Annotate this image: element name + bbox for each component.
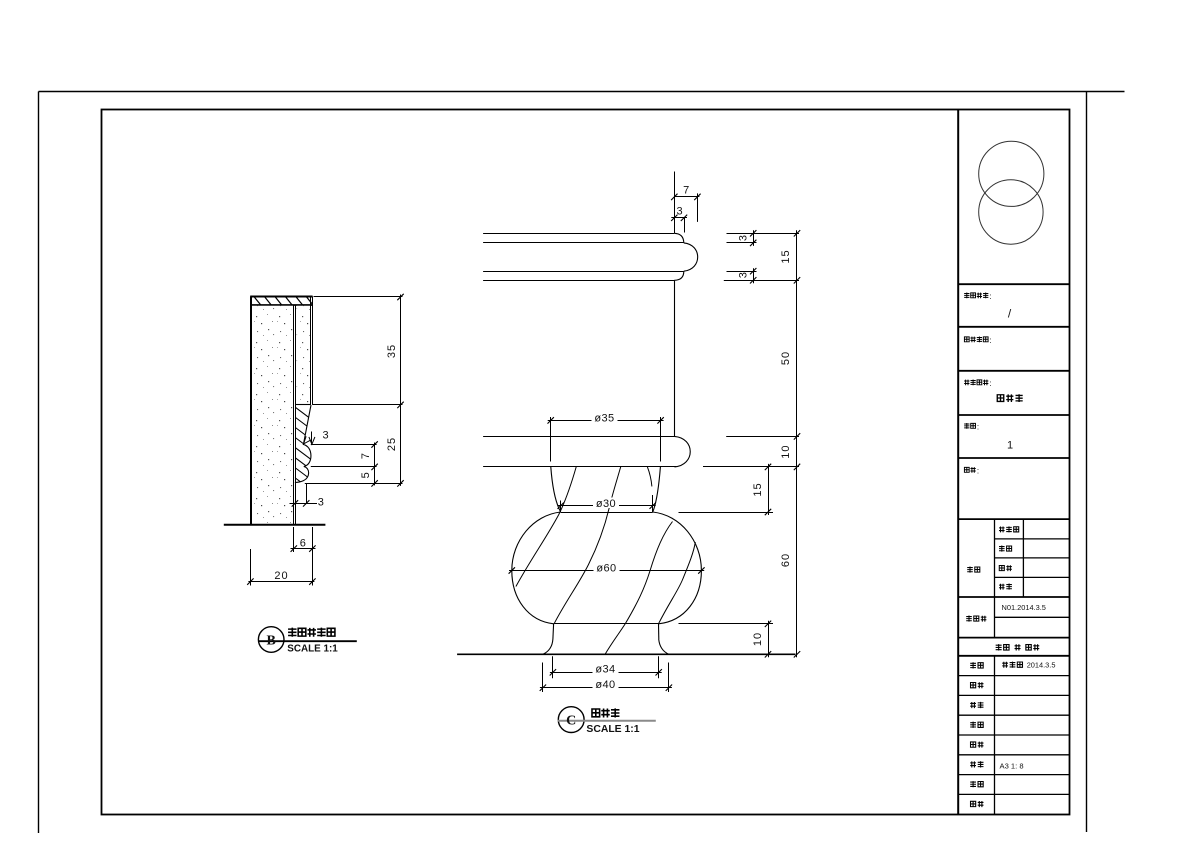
svg-text::: : [990,336,992,345]
svg-text:3: 3 [676,206,682,218]
svg-text:20: 20 [274,570,288,582]
svg-text:ø34: ø34 [595,664,615,676]
svg-text:25: 25 [386,437,398,451]
svg-text:15: 15 [752,482,764,496]
svg-text:1: 1 [1007,440,1013,452]
svg-text:3: 3 [737,272,749,278]
svg-text:3: 3 [737,235,749,241]
svg-text:15: 15 [780,249,792,263]
svg-text:5: 5 [360,472,372,478]
svg-text:7: 7 [360,453,372,459]
svg-text:ø40: ø40 [595,679,615,691]
svg-text:10: 10 [752,632,764,646]
svg-text::: : [990,292,992,301]
svg-text:SCALE 1:1: SCALE 1:1 [287,643,338,654]
svg-text:3: 3 [318,497,324,509]
svg-text:ø60: ø60 [596,563,616,575]
svg-text::: : [977,466,979,475]
svg-text:35: 35 [386,344,398,358]
svg-text::: : [990,379,992,388]
svg-text:50: 50 [780,351,792,365]
svg-text:2014.3.5: 2014.3.5 [1027,661,1056,670]
svg-text:ø35: ø35 [594,413,614,425]
svg-text:7: 7 [683,184,689,196]
svg-text:ø30: ø30 [596,498,616,510]
svg-text:10: 10 [780,444,792,458]
svg-text:A3 1: 8: A3 1: 8 [1000,762,1024,771]
svg-text:N01.2014.3.5: N01.2014.3.5 [1002,603,1046,612]
svg-text:C: C [566,714,576,729]
svg-text:60: 60 [780,553,792,567]
svg-text:6: 6 [300,538,306,550]
svg-text:SCALE 1:1: SCALE 1:1 [586,724,639,735]
svg-text::: : [977,422,979,431]
svg-text:3: 3 [322,430,328,442]
svg-text:B: B [267,633,276,648]
